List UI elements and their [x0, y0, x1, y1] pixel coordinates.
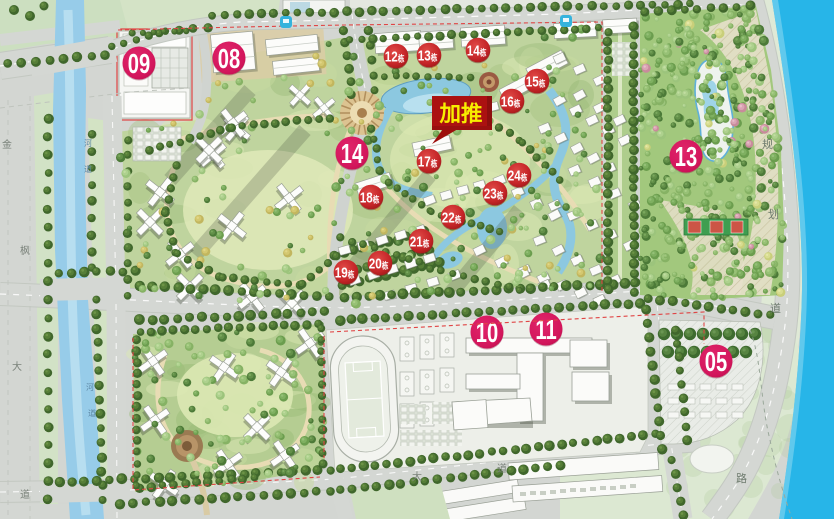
svg-text:河: 河 [86, 382, 94, 392]
svg-text:道: 道 [497, 462, 507, 475]
svg-text:大: 大 [412, 470, 422, 483]
svg-text:道: 道 [88, 408, 96, 418]
svg-text:08: 08 [218, 44, 240, 75]
svg-text:14: 14 [341, 139, 364, 170]
svg-text:大: 大 [12, 360, 22, 373]
svg-text:枫: 枫 [20, 244, 30, 257]
svg-text:05: 05 [705, 347, 727, 378]
svg-text:路: 路 [736, 472, 747, 485]
svg-text:09: 09 [128, 49, 150, 80]
svg-text:道: 道 [84, 164, 92, 174]
svg-text:金: 金 [2, 138, 12, 151]
svg-text:道: 道 [770, 301, 781, 315]
svg-text:加推: 加推 [438, 102, 482, 126]
svg-text:13: 13 [675, 142, 697, 173]
svg-text:道: 道 [20, 488, 30, 501]
svg-text:11: 11 [535, 315, 556, 346]
svg-text:规: 规 [762, 137, 773, 151]
svg-text:河: 河 [84, 138, 92, 148]
svg-text:划: 划 [768, 208, 779, 221]
svg-text:10: 10 [476, 318, 498, 349]
